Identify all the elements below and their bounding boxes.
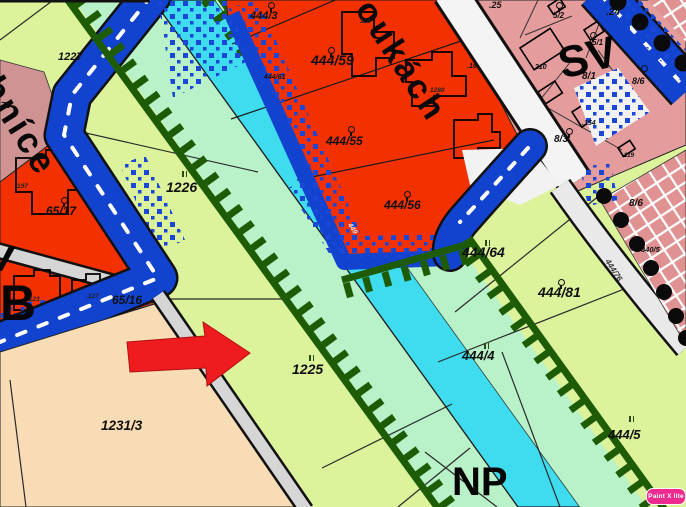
map-graphics — [0, 0, 686, 507]
zoning-map-canvas[interactable]: bníce oukách SV NP B v 1227 1226 1225 12… — [0, 0, 686, 507]
watermark-badge[interactable]: Paint X lite — [646, 488, 686, 505]
map-neatline — [0, 0, 150, 3]
